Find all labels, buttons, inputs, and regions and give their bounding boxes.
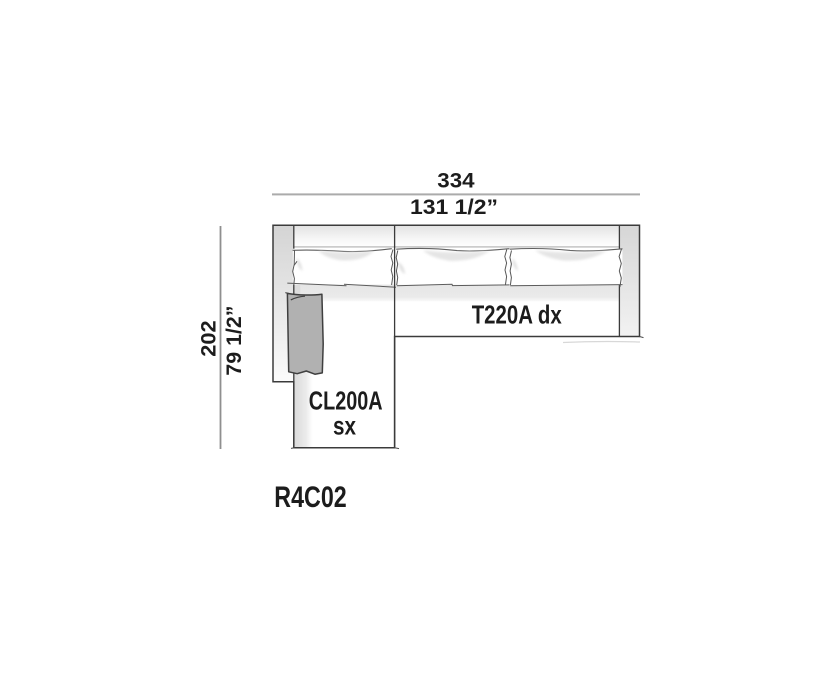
svg-text:R4C02: R4C02 bbox=[274, 481, 346, 514]
svg-text:334: 334 bbox=[437, 169, 475, 192]
svg-text:79 1/2”: 79 1/2” bbox=[222, 306, 246, 376]
svg-text:131 1/2”: 131 1/2” bbox=[410, 196, 498, 219]
svg-text:sx: sx bbox=[333, 411, 356, 441]
svg-text:202: 202 bbox=[197, 320, 221, 356]
svg-text:T220A dx: T220A dx bbox=[472, 299, 562, 329]
